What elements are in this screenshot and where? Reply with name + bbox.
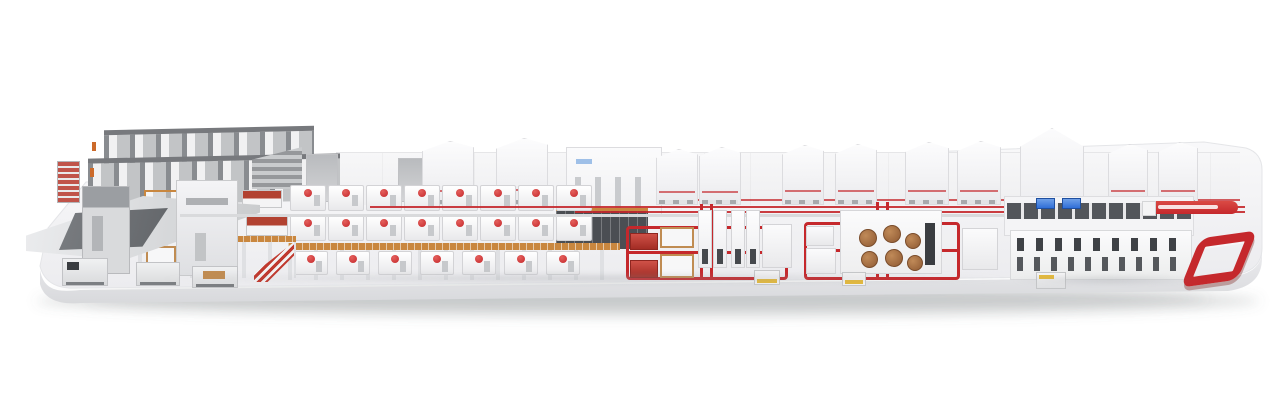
rack-orange-marker [92,142,96,151]
machine-module [328,215,364,241]
machine-module [420,251,454,275]
paper-roll [859,229,877,247]
reel-stand-tower [176,180,238,276]
machine-module [336,251,370,275]
converting-unit [806,248,836,274]
machine-module [462,251,496,275]
paper-roll [907,255,923,271]
mid-deck-row [290,215,620,243]
red-transfer-cart [630,233,658,250]
paper-roll [883,225,901,243]
machine-module [518,215,554,241]
red-striped-tower [57,161,80,203]
floor-shadow [150,274,1020,283]
production-line-render [0,0,1280,405]
splicer-red-top [246,216,288,236]
agv-windshield [67,262,79,270]
converting-unit [762,224,792,268]
agv-cart [62,258,108,286]
converting-unit [962,228,998,270]
winder-machine [840,210,942,274]
machine-module [504,251,538,275]
control-screen [1036,198,1055,209]
mezzanine-edge-railing [288,243,620,250]
converting-tower [746,210,760,268]
converting-tower [698,210,712,268]
upper-deck-row [290,185,620,213]
machine-module [404,215,440,241]
converting-unit [806,226,834,246]
machine-hood [905,142,949,205]
machine-module [328,185,364,211]
control-screen [1062,198,1081,209]
paper-roll [861,251,878,268]
converting-tower [731,210,745,268]
corrugator-bridge [288,183,620,283]
wood-frame-machine [660,227,694,248]
machine-module [378,251,412,275]
floor-shadow [1010,276,1210,284]
machine-opening [925,223,935,265]
machine-hood [835,144,877,205]
machine-hood [699,147,741,205]
machine-module [442,215,478,241]
machine-module [480,215,516,241]
machine-module [294,251,328,275]
elevated-red-conveyor [1150,201,1238,214]
machine-hood [656,149,698,205]
machine-hood [782,145,824,205]
machine-module [556,215,592,241]
rack-orange-marker [90,168,94,177]
machine-hood [957,141,1001,205]
paper-roll [885,249,903,267]
converting-tower [713,210,727,268]
paper-roll [905,233,921,249]
machine-module [546,251,580,275]
conveyor-end-cap [1142,201,1156,216]
machine-module [366,215,402,241]
